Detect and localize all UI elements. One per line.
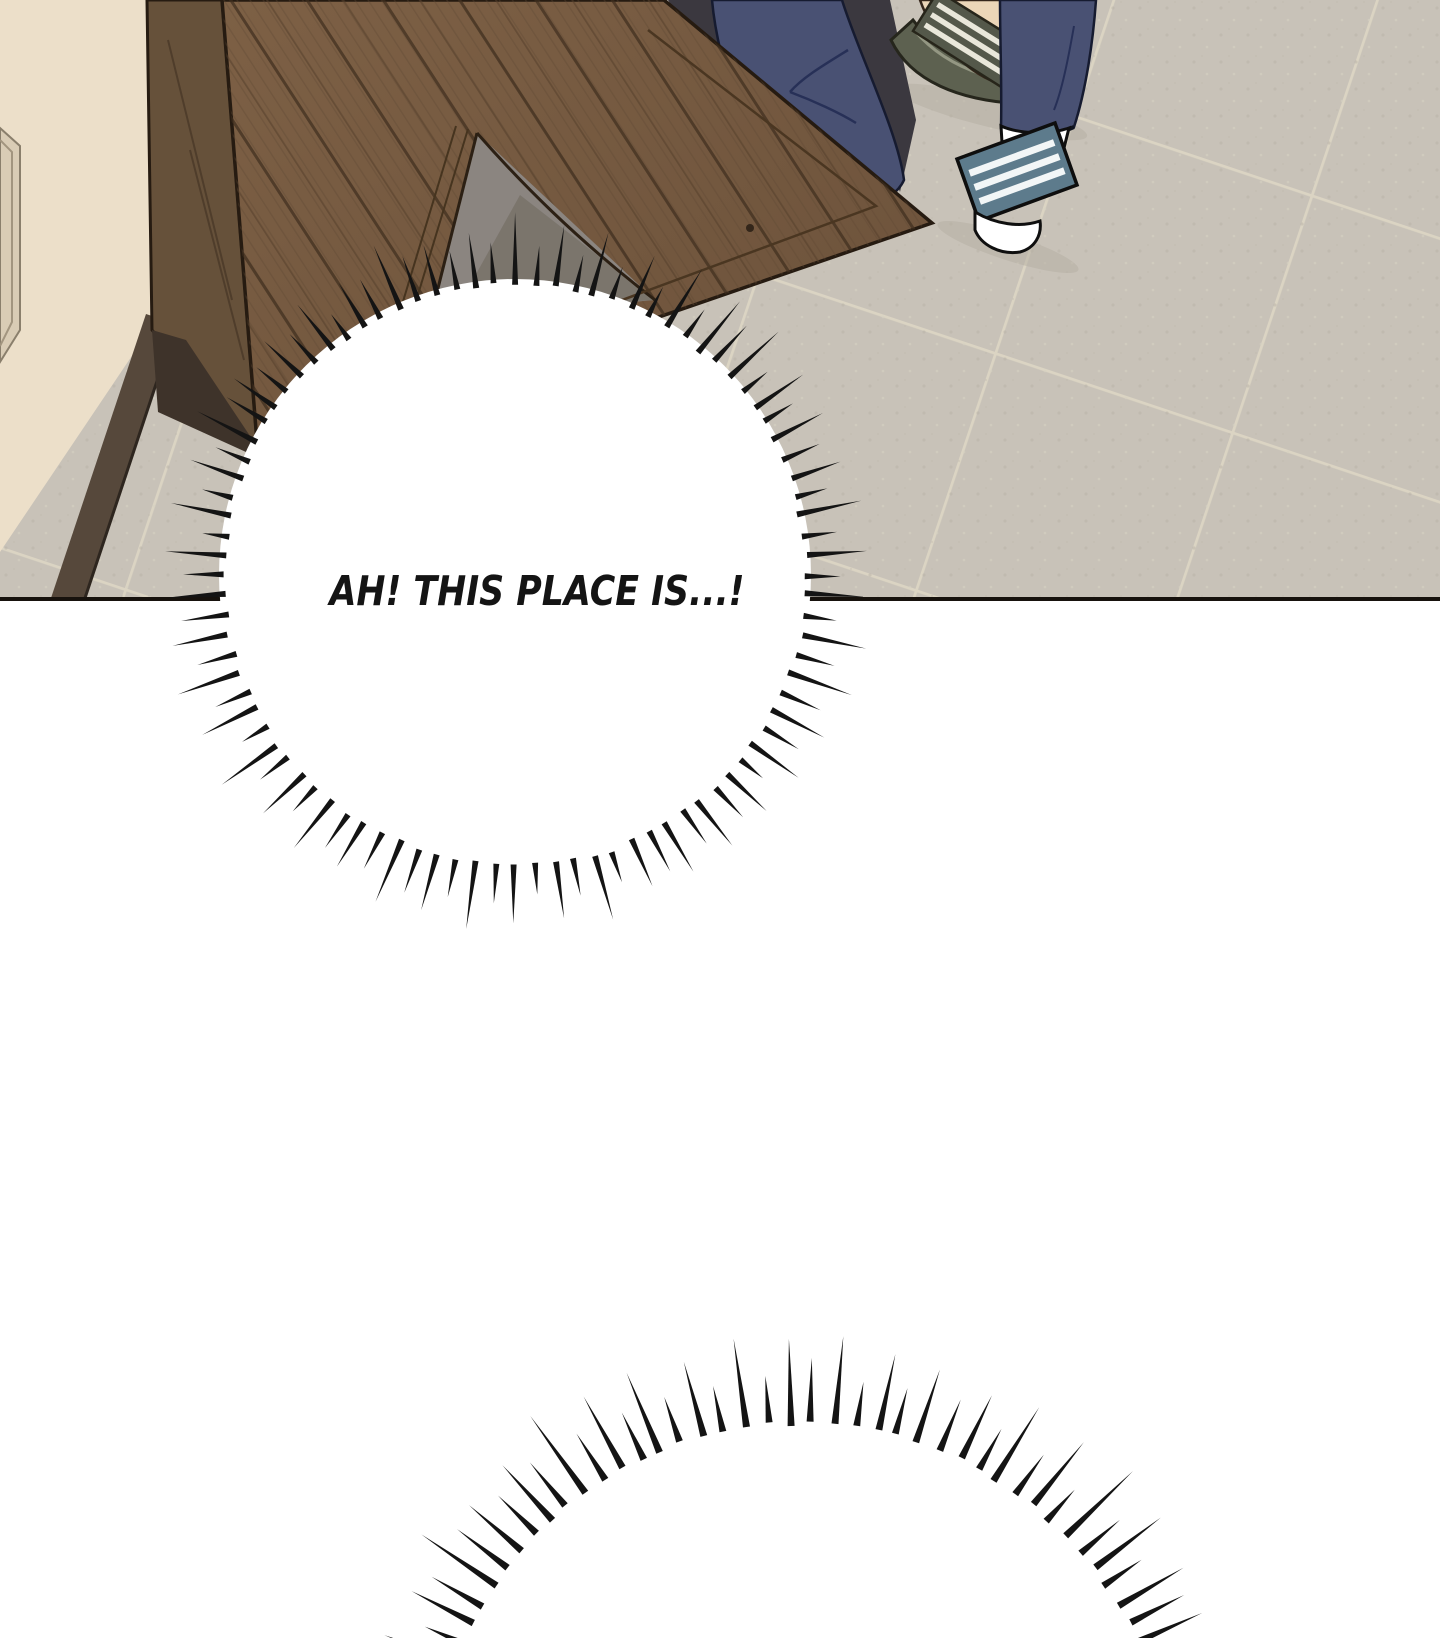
bubble-spike <box>592 855 613 920</box>
bubble-spike <box>530 1416 588 1495</box>
bubble-spike <box>780 690 821 710</box>
bubble-spike <box>694 799 732 846</box>
bubble-spike <box>178 670 240 695</box>
bubble-spike <box>448 859 459 897</box>
bubble-spike <box>647 830 671 872</box>
bubble-spike <box>1012 1455 1044 1497</box>
bubble-spike <box>795 652 834 666</box>
cabinet-knob <box>746 224 754 232</box>
bubble-spike <box>853 1382 863 1426</box>
bubble-spike <box>1063 1471 1133 1538</box>
bubble-spike <box>734 1339 750 1428</box>
bubble-spike <box>293 785 318 811</box>
bubble-spike <box>260 755 290 780</box>
comic-page: AH! THIS PLACE IS...! <box>0 0 1440 1638</box>
bubble-spike <box>1101 1560 1141 1589</box>
bubble-spike <box>622 1413 647 1461</box>
bubble-spike <box>1129 1595 1184 1626</box>
bubble-spike <box>959 1395 992 1459</box>
bubble-spike <box>713 1386 726 1432</box>
bubble-spike <box>222 743 278 785</box>
bubble-spike <box>976 1429 1001 1471</box>
bubble-white-circle <box>428 1420 1172 1638</box>
bubble-spike <box>421 1534 498 1588</box>
bubble-spike <box>181 612 229 622</box>
bubble-spike <box>1044 1490 1075 1524</box>
bubble-spike <box>739 757 764 778</box>
bubble-spike <box>803 613 837 621</box>
bubble-spike <box>770 707 824 738</box>
bubble-spike <box>502 1465 555 1522</box>
bubble-spike <box>807 1358 814 1422</box>
bubble-spike <box>376 839 405 902</box>
bubble-spike <box>1093 1518 1161 1571</box>
bubble-spike <box>553 861 564 918</box>
bubble-spike <box>788 1339 795 1426</box>
bubble-spike <box>1031 1442 1084 1506</box>
bubble-spike <box>364 831 385 868</box>
bubble-spike <box>197 651 237 665</box>
bubble-spike <box>466 861 478 930</box>
bubble-spike <box>263 772 307 813</box>
bubble-spike <box>765 1376 772 1423</box>
bubble-spike <box>913 1370 940 1444</box>
bubble-spike <box>713 786 743 817</box>
burst-speech-bubble-partial <box>344 1336 1250 1638</box>
bubble-spike <box>664 1397 683 1443</box>
bubble-spike <box>609 851 622 882</box>
bubble-spike <box>629 838 653 887</box>
bubble-spike <box>1117 1568 1184 1609</box>
bubble-spike <box>876 1354 896 1431</box>
bubble-spike <box>493 864 499 904</box>
bubble-spike <box>627 1373 663 1454</box>
bubble-spike <box>832 1336 844 1424</box>
bubble-spike <box>337 821 366 867</box>
bubble-spike <box>404 849 422 893</box>
bubble-spike <box>892 1388 908 1434</box>
bubble-spike <box>787 670 852 696</box>
bubble-spike <box>684 1362 707 1437</box>
bubble-spike <box>294 798 335 848</box>
bubble-spike <box>325 813 351 848</box>
bubble-spike <box>421 854 440 910</box>
bubble-spike <box>202 704 258 735</box>
bubble-spike <box>763 726 799 750</box>
speech-text: AH! THIS PLACE IS...! <box>327 567 745 615</box>
bubble-spike <box>577 1434 609 1482</box>
bubble-spike <box>532 863 538 895</box>
bubble-spike <box>937 1400 961 1452</box>
bubble-spike <box>680 808 707 844</box>
bubble-spike <box>173 632 228 646</box>
bubble-spike <box>802 632 866 648</box>
bubble-spike <box>425 1627 467 1638</box>
bubble-spike <box>511 865 517 924</box>
